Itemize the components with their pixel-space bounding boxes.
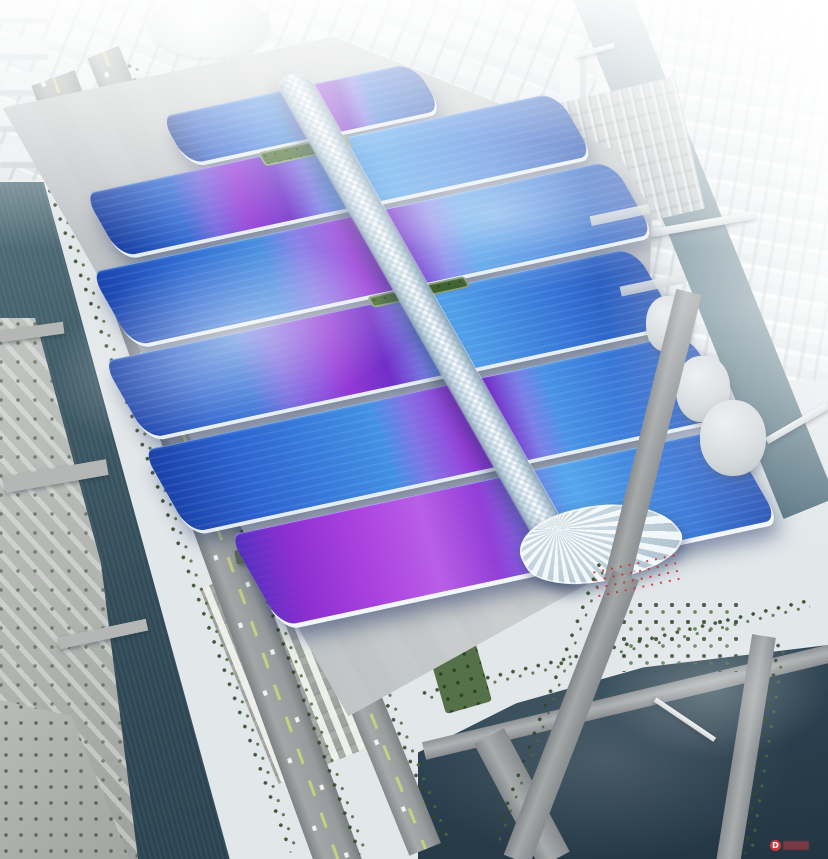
watermark: D (770, 838, 822, 852)
aerial-rendering-canvas: D (0, 0, 828, 859)
watermark-logo: D (770, 840, 781, 851)
round-building-3 (700, 400, 766, 476)
watermark-text-smudge (783, 841, 809, 850)
